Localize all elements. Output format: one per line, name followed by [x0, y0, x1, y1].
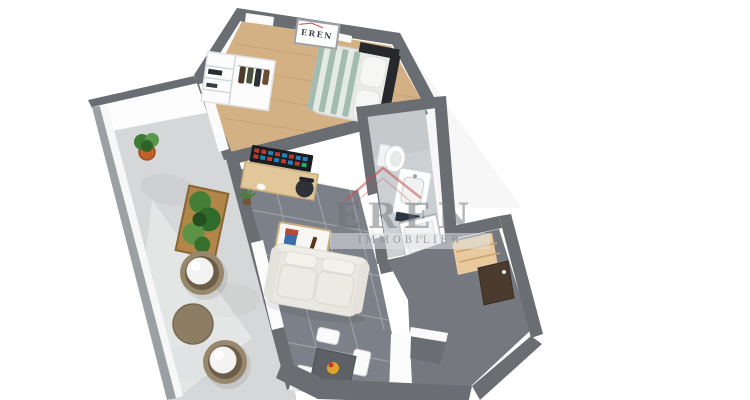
door-leaf — [478, 261, 514, 305]
cushion-highlight — [214, 350, 224, 360]
fruit — [329, 363, 334, 368]
table-top — [173, 304, 213, 344]
door-handle — [502, 270, 506, 274]
watermark-tagline: IMMOBILIER — [330, 233, 490, 249]
grass-pot — [243, 199, 251, 205]
cushion-highlight — [191, 261, 201, 271]
entry-door — [478, 261, 514, 305]
watermark-brand: EREN — [334, 196, 476, 237]
seat-cushion — [314, 271, 355, 309]
screen-thumbnail-green — [301, 163, 307, 168]
chair-cushion — [187, 258, 214, 285]
seat-cushion — [276, 264, 317, 302]
floorplan-render: EREN EREN IMMOBILIER — [0, 0, 750, 400]
chair-cushion — [210, 347, 237, 374]
round-side-table — [173, 304, 213, 344]
wardrobe — [201, 52, 275, 111]
plant-foliage — [141, 140, 153, 152]
frame-brand-text: EREN — [301, 28, 334, 40]
